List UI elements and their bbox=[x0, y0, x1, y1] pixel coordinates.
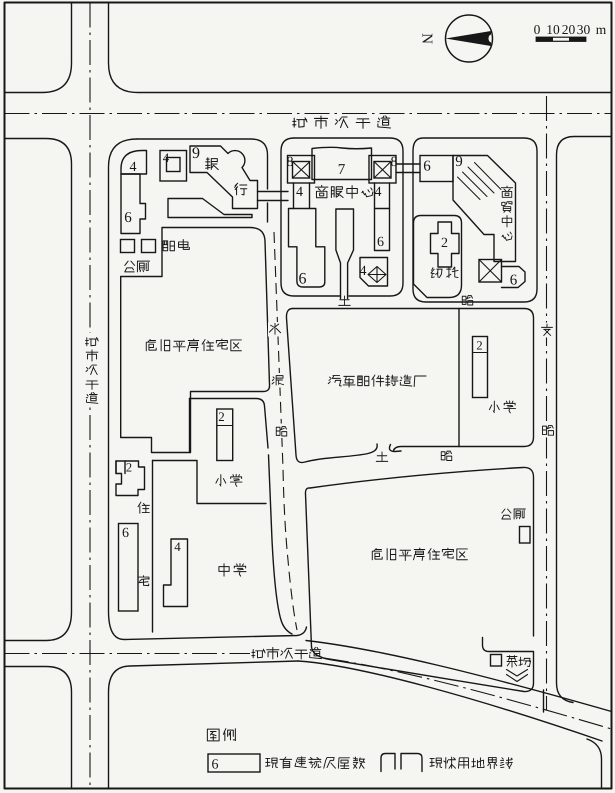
svg-text:7: 7 bbox=[338, 162, 346, 178]
svg-text:6: 6 bbox=[423, 159, 431, 175]
svg-text:4: 4 bbox=[163, 150, 170, 165]
svg-text:4: 4 bbox=[174, 539, 181, 554]
svg-text:4: 4 bbox=[375, 185, 382, 200]
svg-text:2: 2 bbox=[218, 409, 225, 424]
svg-text:4: 4 bbox=[296, 185, 303, 200]
svg-text:2: 2 bbox=[476, 339, 482, 353]
svg-text:6: 6 bbox=[124, 210, 132, 226]
svg-text:8: 8 bbox=[391, 155, 398, 170]
svg-text:6: 6 bbox=[510, 273, 518, 289]
svg-text:6: 6 bbox=[212, 758, 219, 773]
svg-text:20: 20 bbox=[562, 22, 576, 37]
svg-text:2: 2 bbox=[126, 461, 132, 475]
svg-text:10: 10 bbox=[546, 22, 560, 37]
svg-text:6: 6 bbox=[122, 526, 129, 541]
svg-text:4: 4 bbox=[130, 160, 137, 175]
svg-text:2: 2 bbox=[441, 236, 448, 251]
svg-text:N: N bbox=[419, 33, 435, 44]
svg-text:m: m bbox=[596, 22, 607, 37]
svg-text:9: 9 bbox=[192, 145, 200, 162]
svg-text:6: 6 bbox=[377, 235, 384, 250]
svg-text:4: 4 bbox=[360, 264, 367, 279]
svg-text:8: 8 bbox=[287, 155, 294, 170]
svg-text:0: 0 bbox=[534, 22, 541, 37]
svg-text:30: 30 bbox=[577, 22, 591, 37]
svg-text:9: 9 bbox=[455, 154, 463, 170]
svg-text:6: 6 bbox=[299, 271, 307, 288]
